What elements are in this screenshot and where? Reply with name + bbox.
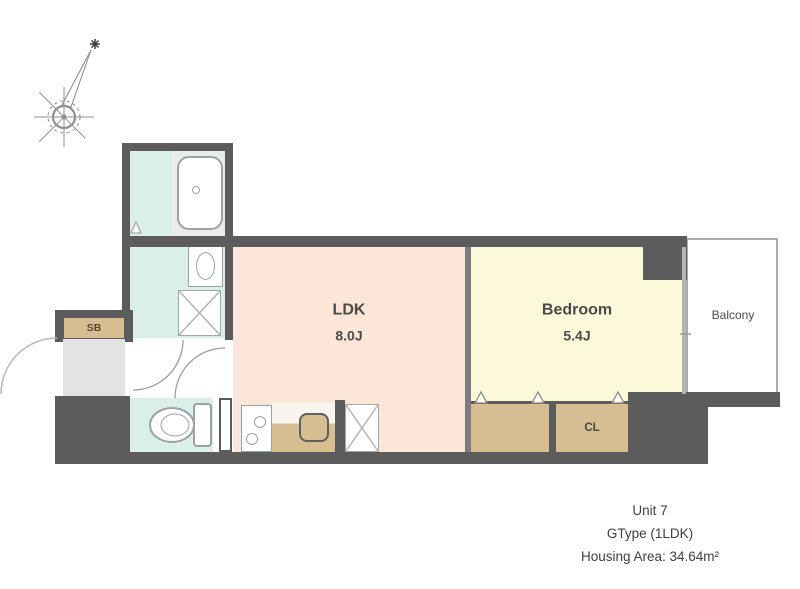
- compass-icon: [34, 50, 94, 147]
- north-needle: [62, 50, 91, 107]
- wall-bath-left: [122, 143, 130, 310]
- housing-area: Housing Area: 34.64m²: [500, 545, 800, 568]
- wall-ldk-bedroom-divider: [465, 247, 471, 452]
- ldk-name: LDK: [333, 303, 366, 319]
- door-leaf: [219, 398, 232, 452]
- bedroom-size: 5.4J: [542, 328, 612, 344]
- unit-number: Unit 7: [500, 499, 800, 522]
- stove: [241, 405, 272, 452]
- floor-plan: LDK 8.0J Bedroom 5.4J Balcony SB CL Unit…: [0, 0, 800, 589]
- wall-entry-left: [55, 318, 63, 342]
- unit-info: Unit 7 GType (1LDK) Housing Area: 34.64m…: [500, 499, 800, 568]
- wall-shoebox-right: [125, 310, 133, 342]
- stove-burner-1: [254, 416, 266, 428]
- hallway-floor: [127, 338, 233, 398]
- balcony-label: Balcony: [712, 308, 755, 322]
- wall-top-main: [122, 236, 687, 247]
- wall-entrance-block: [55, 396, 130, 458]
- wall-shoebox-top: [55, 310, 133, 318]
- closet-label: CL: [584, 422, 599, 434]
- washing-machine-space: [178, 290, 221, 336]
- ldk-label: LDK 8.0J: [333, 303, 366, 344]
- wall-kitchen-stub: [335, 400, 345, 452]
- wall-closet-front: [471, 401, 628, 404]
- ldk-size: 8.0J: [333, 328, 366, 344]
- bathtub-drain: [192, 186, 200, 194]
- refrigerator-space: [345, 404, 379, 452]
- entry-door-arc: [1, 338, 57, 394]
- bedroom-window: [682, 247, 686, 394]
- washbasin-bowl: [196, 252, 215, 280]
- toilet-room-floor: [130, 398, 213, 452]
- stove-burner-2: [246, 433, 258, 445]
- wall-bottom-main: [55, 452, 708, 464]
- bedroom-label: Bedroom 5.4J: [542, 303, 612, 344]
- shoe-box-label: SB: [87, 322, 102, 334]
- north-star-icon: [90, 39, 100, 49]
- wall-bath-top: [122, 143, 233, 151]
- unit-type: GType (1LDK): [500, 522, 800, 545]
- wall-pillar-topright: [643, 236, 687, 280]
- wall-balcony-bottom: [686, 392, 780, 407]
- wall-closet-divider: [549, 404, 556, 452]
- kitchen-sink: [299, 413, 329, 442]
- entrance-floor: [63, 339, 125, 398]
- bedroom-name: Bedroom: [542, 303, 612, 319]
- bathtub: [177, 156, 223, 230]
